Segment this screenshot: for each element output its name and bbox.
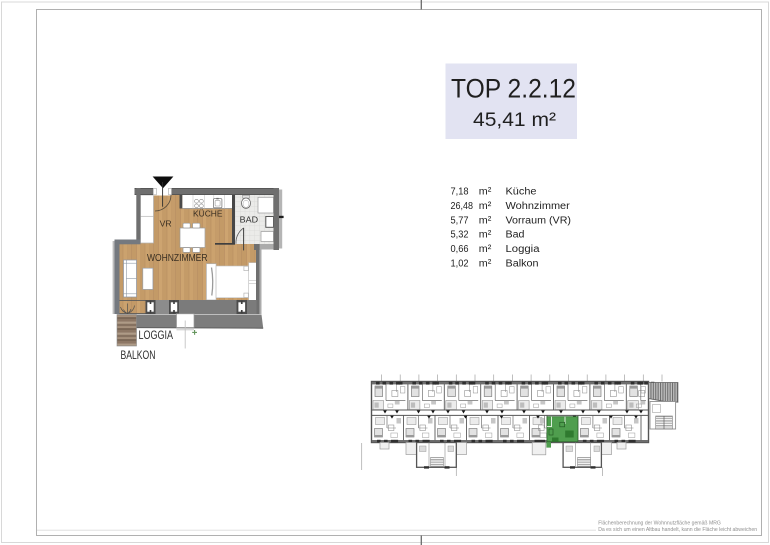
svg-text:Da es sich um einen Altbau han: Da es sich um einen Altbau handelt, kann… — [598, 527, 757, 533]
svg-text:m²: m² — [479, 230, 492, 241]
svg-text:TOP 2.2.12: TOP 2.2.12 — [451, 74, 576, 104]
svg-text:LOGGIA: LOGGIA — [139, 328, 174, 342]
svg-text:m²: m² — [479, 259, 492, 270]
svg-text:26,48: 26,48 — [451, 201, 474, 212]
svg-text:BALKON: BALKON — [121, 348, 156, 362]
svg-text:Vorraum (VR): Vorraum (VR) — [506, 215, 572, 226]
svg-text:m²: m² — [479, 186, 492, 197]
svg-text:Wohnzimmer: Wohnzimmer — [506, 201, 571, 212]
svg-text:KÜCHE: KÜCHE — [193, 208, 223, 218]
svg-text:VR: VR — [160, 219, 172, 229]
svg-text:7,18: 7,18 — [451, 186, 469, 197]
svg-text:5,32: 5,32 — [451, 230, 469, 241]
svg-text:m²: m² — [479, 244, 492, 255]
svg-text:BAD: BAD — [240, 214, 258, 224]
svg-text:m²: m² — [479, 201, 492, 212]
svg-text:Bad: Bad — [506, 230, 525, 241]
svg-text:m²: m² — [479, 215, 492, 226]
svg-text:0,66: 0,66 — [451, 244, 469, 255]
svg-text:Balkon: Balkon — [506, 259, 539, 270]
svg-text:Flächenberechnung der Wohnnutz: Flächenberechnung der Wohnnutzfläche gem… — [598, 520, 721, 526]
svg-text:1,02: 1,02 — [451, 259, 469, 270]
svg-text:WOHNZIMMER: WOHNZIMMER — [147, 253, 208, 264]
svg-text:45,41 m²: 45,41 m² — [473, 109, 557, 131]
svg-text:5,77: 5,77 — [451, 215, 469, 226]
svg-text:Küche: Küche — [506, 186, 537, 197]
svg-text:Loggia: Loggia — [506, 244, 540, 255]
